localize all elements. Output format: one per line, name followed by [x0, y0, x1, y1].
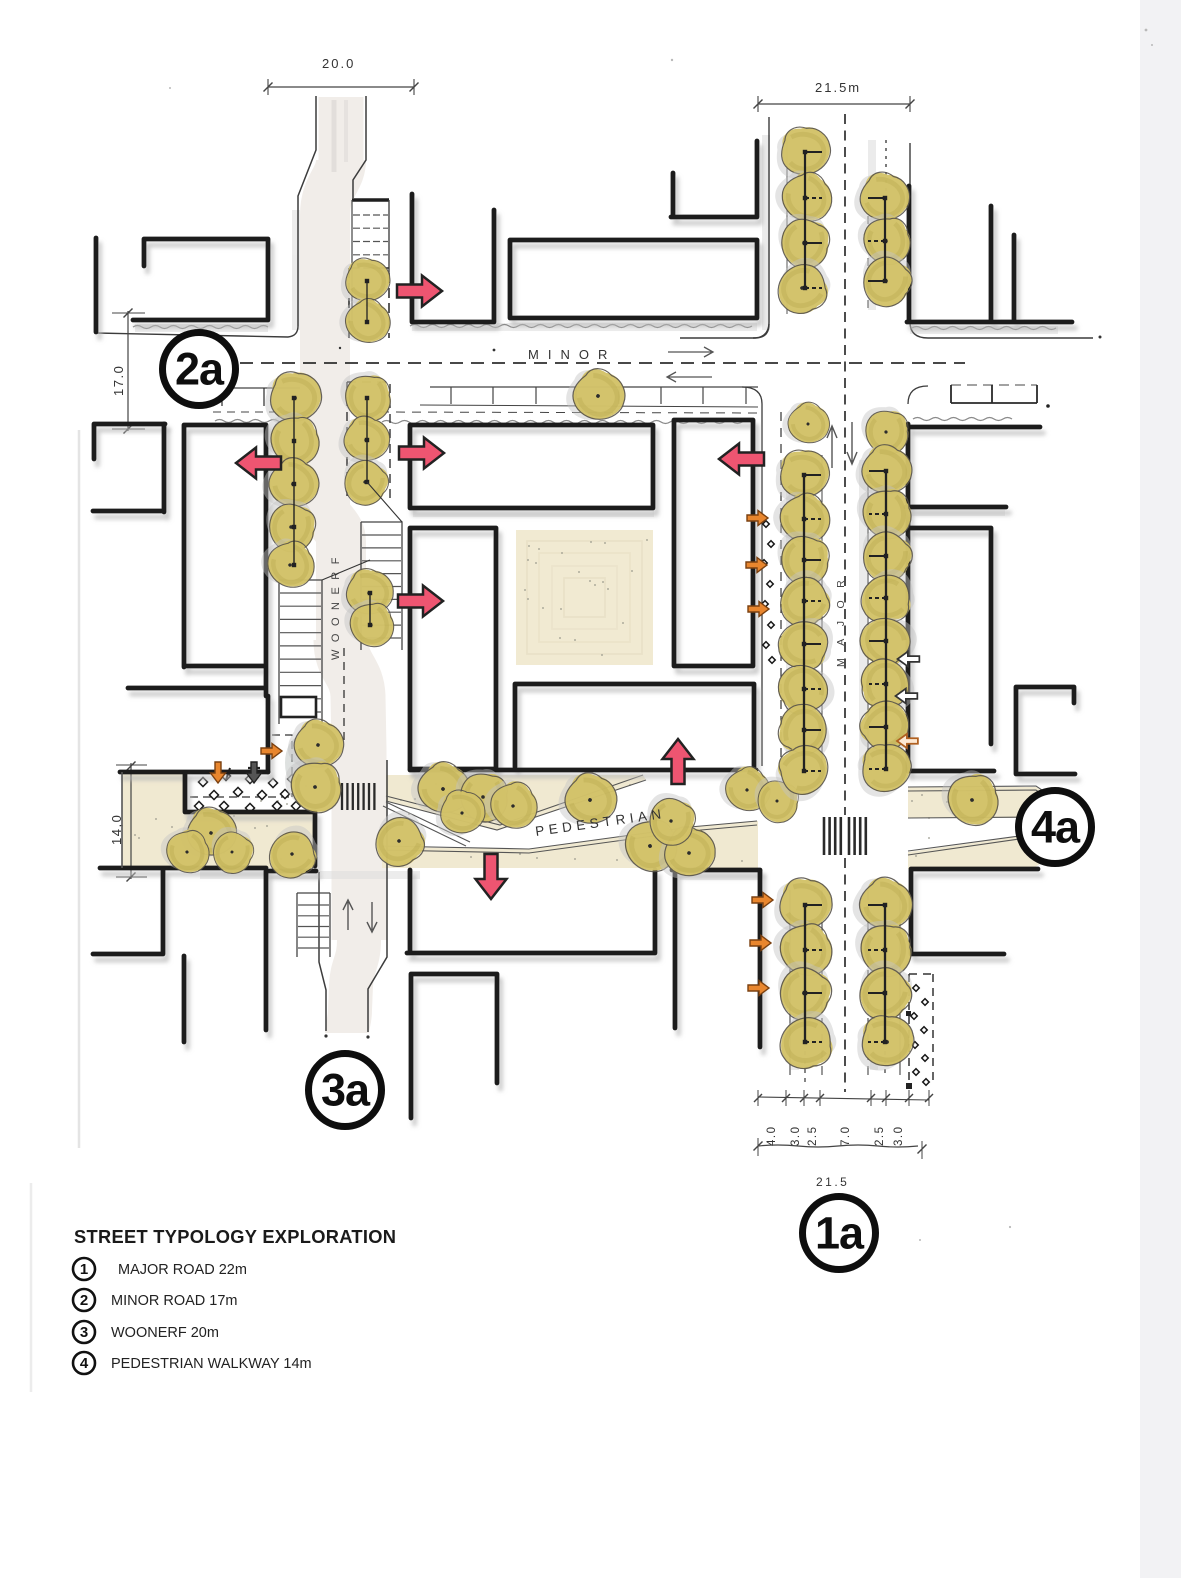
svg-text:4.0: 4.0 — [766, 1126, 778, 1147]
svg-text:3a: 3a — [321, 1065, 371, 1116]
svg-text:1: 1 — [80, 1261, 88, 1278]
svg-text:2: 2 — [80, 1292, 88, 1309]
svg-text:7.0: 7.0 — [840, 1126, 852, 1147]
svg-text:2.5: 2.5 — [807, 1126, 819, 1147]
svg-text:1a: 1a — [815, 1208, 865, 1259]
svg-text:MAJOR ROAD 22m: MAJOR ROAD 22m — [118, 1262, 247, 1278]
svg-text:WOONERF: WOONERF — [330, 550, 342, 660]
svg-text:4: 4 — [80, 1355, 89, 1372]
svg-text:3.0: 3.0 — [893, 1126, 905, 1147]
svg-text:STREET TYPOLOGY EXPLORATION: STREET TYPOLOGY EXPLORATION — [74, 1226, 396, 1247]
svg-text:PEDESTRIAN WALKWAY 14m: PEDESTRIAN WALKWAY 14m — [111, 1356, 312, 1372]
svg-text:3.0: 3.0 — [790, 1126, 802, 1147]
svg-text:WOONERF 20m: WOONERF 20m — [111, 1325, 219, 1341]
svg-text:17.0: 17.0 — [111, 365, 126, 396]
svg-text:21.5: 21.5 — [816, 1175, 849, 1189]
svg-text:MINOR ROAD 17m: MINOR ROAD 17m — [111, 1293, 238, 1309]
svg-text:2.5: 2.5 — [874, 1126, 886, 1147]
svg-text:20.0: 20.0 — [322, 56, 355, 71]
svg-text:MINOR: MINOR — [528, 347, 616, 362]
svg-text:2a: 2a — [175, 344, 225, 395]
svg-text:3: 3 — [80, 1324, 88, 1341]
svg-text:MAJOR: MAJOR — [835, 568, 847, 667]
svg-text:21.5m: 21.5m — [815, 80, 861, 95]
svg-text:4a: 4a — [1031, 802, 1081, 853]
